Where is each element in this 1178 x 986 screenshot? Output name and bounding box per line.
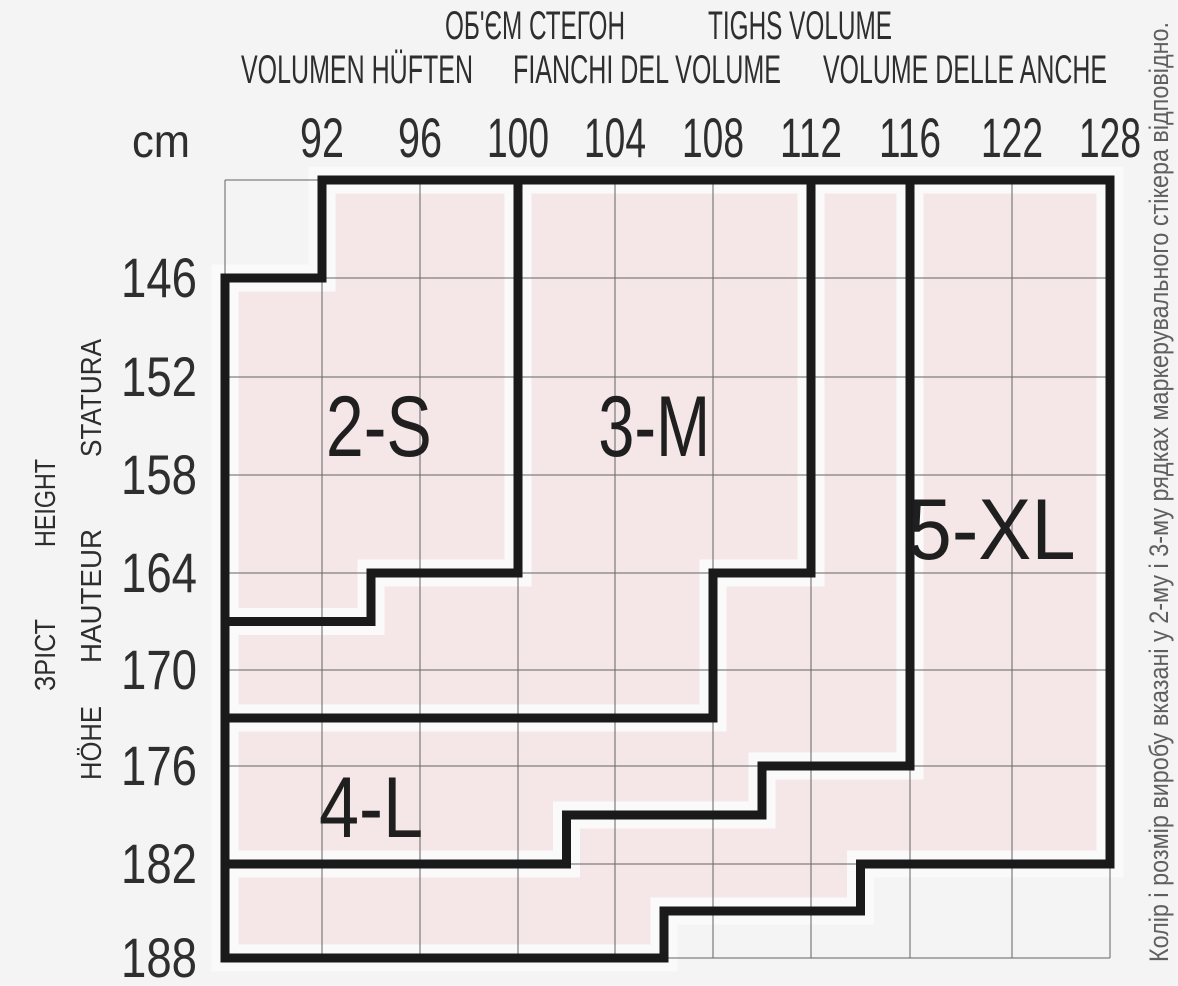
y-tick-label-182: 182 bbox=[121, 832, 197, 895]
size-region-5-xl-label: 5-XL bbox=[908, 482, 1076, 578]
size-region-4-l-label: 4-L bbox=[319, 760, 423, 856]
x-axis-title-uk: ОБ'ЄМ СТЕГОН bbox=[445, 4, 625, 48]
x-axis-title-de: VOLUMEN HÜFTEN bbox=[241, 48, 473, 92]
y-axis-word-statura: STATURA bbox=[76, 338, 108, 457]
x-axis-unit-label: cm bbox=[132, 115, 190, 167]
x-tick-label-100: 100 bbox=[487, 106, 549, 169]
size-region-2-s-label: 2-S bbox=[326, 379, 432, 475]
x-tick-label-116: 116 bbox=[879, 106, 941, 169]
size-region-3-m-label: 3-M bbox=[598, 379, 710, 475]
y-axis-word-height: HEIGHT bbox=[30, 459, 62, 547]
size-chart: 2-S3-M4-L5-XL929610010410811211612212814… bbox=[0, 0, 1178, 986]
x-tick-label-96: 96 bbox=[398, 106, 442, 169]
y-tick-label-158: 158 bbox=[121, 443, 197, 506]
y-tick-label-164: 164 bbox=[121, 541, 197, 604]
y-axis-word-zrist: ЗРІСТ bbox=[30, 619, 62, 691]
x-tick-label-104: 104 bbox=[584, 106, 646, 169]
x-tick-label-108: 108 bbox=[682, 106, 744, 169]
x-tick-label-112: 112 bbox=[780, 106, 842, 169]
y-tick-label-176: 176 bbox=[121, 734, 197, 797]
y-tick-label-188: 188 bbox=[121, 926, 197, 986]
x-axis-title-it: FIANCHI DEL VOLUME bbox=[513, 48, 781, 92]
y-tick-label-170: 170 bbox=[121, 638, 197, 701]
sticker-note-text: Колір і розмір виробу вказані у 2-му і 3… bbox=[1144, 22, 1174, 962]
x-axis-title-it2: VOLUME DELLE ANCHE bbox=[823, 48, 1107, 92]
x-tick-label-122: 122 bbox=[981, 106, 1043, 169]
x-axis-title-en: TIGHS VOLUME bbox=[708, 4, 892, 48]
x-tick-label-92: 92 bbox=[300, 106, 344, 169]
y-tick-label-146: 146 bbox=[121, 246, 197, 309]
x-tick-label-128: 128 bbox=[1079, 106, 1141, 169]
y-axis-word-hauteur: HAUTEUR bbox=[76, 529, 108, 663]
y-tick-label-152: 152 bbox=[121, 345, 197, 408]
y-axis-word-hohe: HÖHE bbox=[76, 706, 108, 780]
